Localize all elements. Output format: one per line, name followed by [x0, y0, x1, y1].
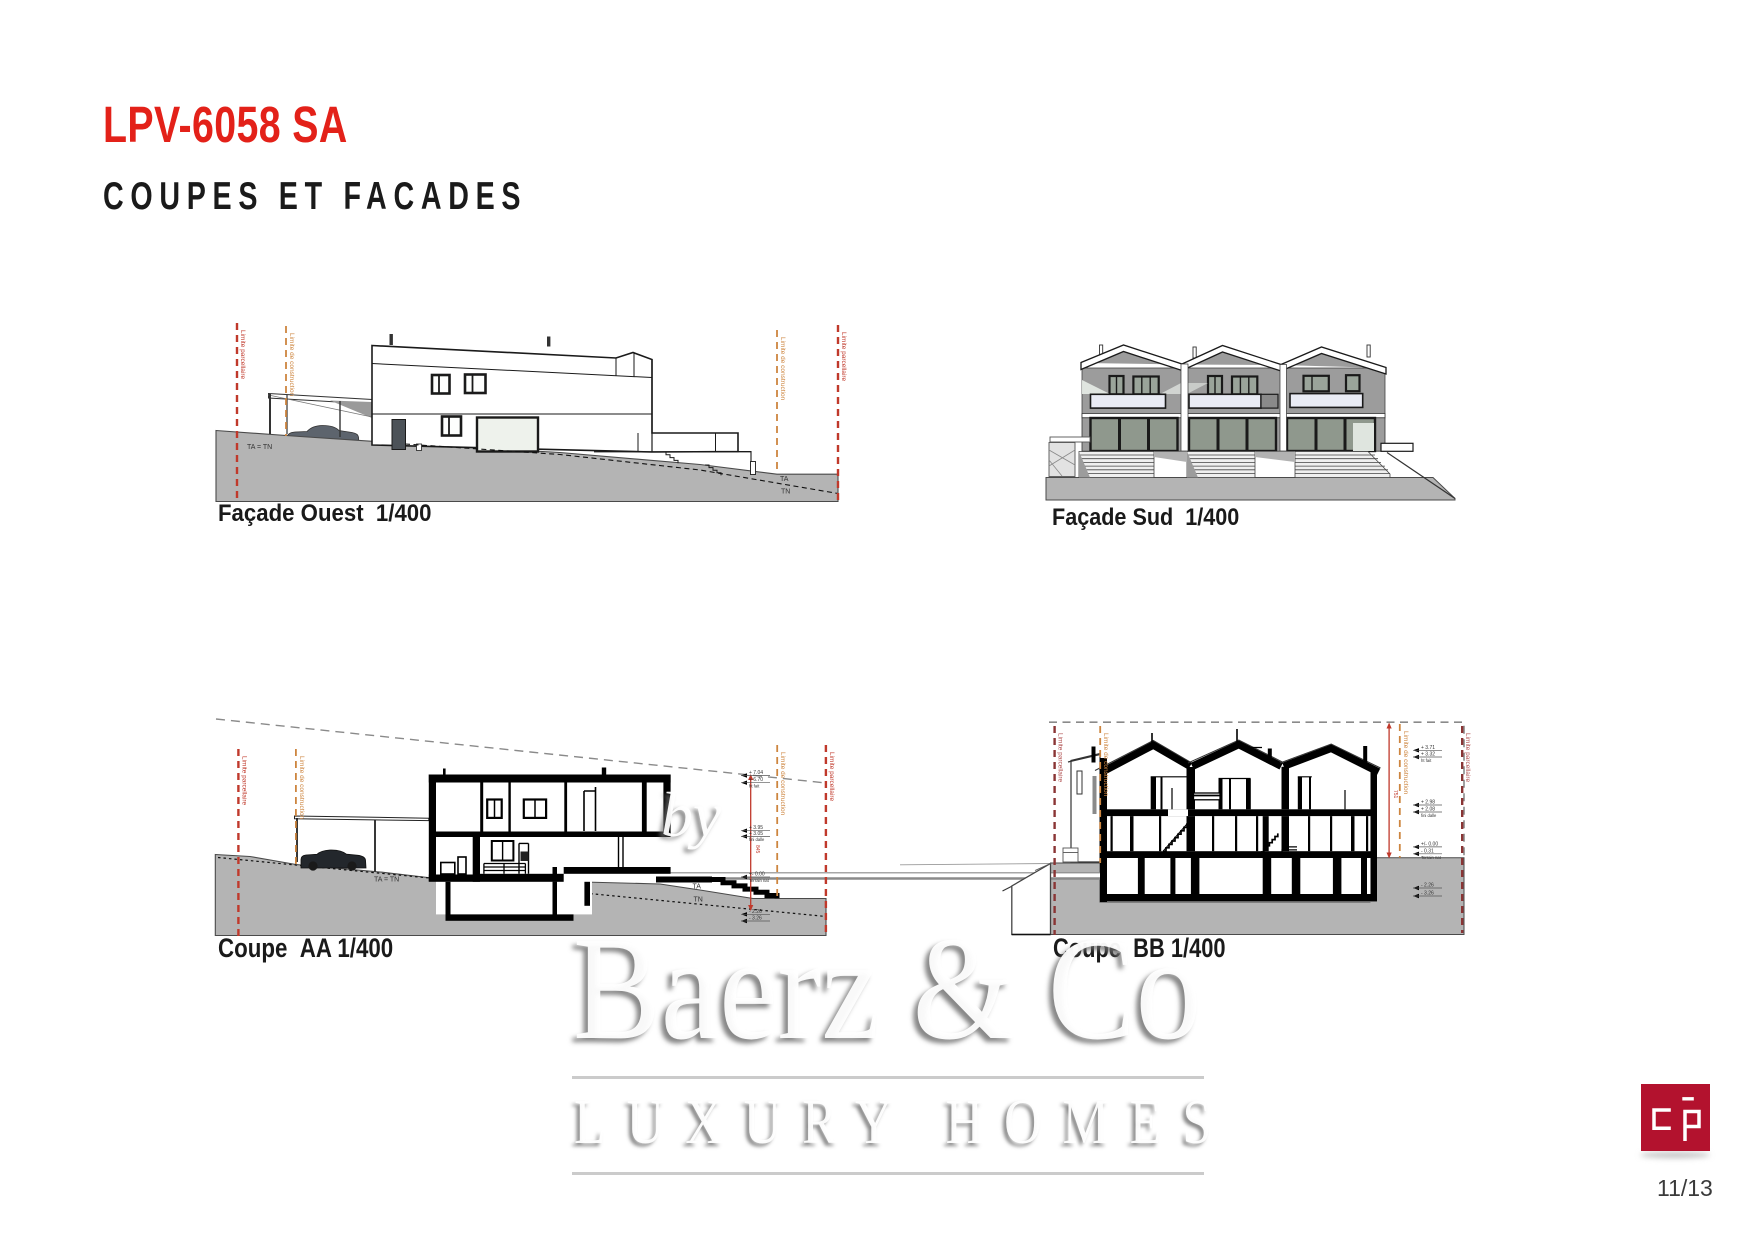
svg-text:fini dalle: fini dalle — [1421, 813, 1437, 818]
svg-text:+ 6.70: + 6.70 — [749, 777, 763, 783]
svg-text:Limite de construction: Limite de construction — [1102, 733, 1109, 797]
svg-text:+ 7.04: + 7.04 — [749, 770, 763, 776]
svg-text:+ 3.32: + 3.32 — [1421, 752, 1435, 758]
svg-text:+ 2.08: + 2.08 — [1421, 807, 1435, 813]
svg-text:Limite parcellaire: Limite parcellaire — [239, 330, 246, 380]
svg-text:Limite parcellaire: Limite parcellaire — [1057, 733, 1064, 783]
svg-text:+- 0.00: +- 0.00 — [749, 872, 765, 878]
svg-text:TA = TN: TA = TN — [247, 444, 272, 451]
svg-text:+ 2.98: + 2.98 — [1421, 800, 1435, 806]
svg-text:TA: TA — [693, 884, 702, 891]
svg-text:845: 845 — [754, 845, 760, 854]
svg-text:- 2.26: - 2.26 — [1421, 883, 1434, 889]
svg-text:Limite parcellaire: Limite parcellaire — [1464, 733, 1471, 783]
svg-text:ht fait: ht fait — [749, 784, 760, 789]
svg-text:fini dalle: fini dalle — [749, 837, 765, 842]
svg-text:Limite parcellaire: Limite parcellaire — [828, 752, 835, 802]
svg-text:+ 3.71: + 3.71 — [1421, 745, 1435, 751]
svg-text:Limite de construction: Limite de construction — [779, 752, 786, 816]
svg-text:Limite de construction: Limite de construction — [1402, 731, 1409, 795]
svg-text:TN: TN — [781, 489, 790, 496]
svg-text:TA: TA — [780, 476, 789, 483]
svg-text:ht fait: ht fait — [1421, 758, 1432, 763]
svg-text:Limite de construction: Limite de construction — [779, 337, 786, 401]
svg-text:Limite parcellaire: Limite parcellaire — [240, 756, 247, 806]
svg-text:+ 3.05: + 3.05 — [749, 831, 763, 837]
svg-text:Limite parcellaire: Limite parcellaire — [840, 332, 847, 382]
svg-text:- 3.26: - 3.26 — [1421, 891, 1434, 897]
svg-text:Limite de construction: Limite de construction — [298, 756, 305, 820]
svg-text:TN: TN — [694, 897, 703, 904]
svg-text:- 0.31: - 0.31 — [1421, 848, 1434, 854]
svg-text:751: 751 — [1392, 790, 1398, 799]
svg-text:Terrain nat: Terrain nat — [1421, 855, 1442, 860]
svg-text:TA = TN: TA = TN — [374, 877, 399, 884]
svg-text:Limite de construction: Limite de construction — [288, 333, 295, 397]
svg-text:Terrain nat: Terrain nat — [749, 878, 770, 883]
svg-text:+/- 0.00: +/- 0.00 — [1421, 841, 1438, 847]
